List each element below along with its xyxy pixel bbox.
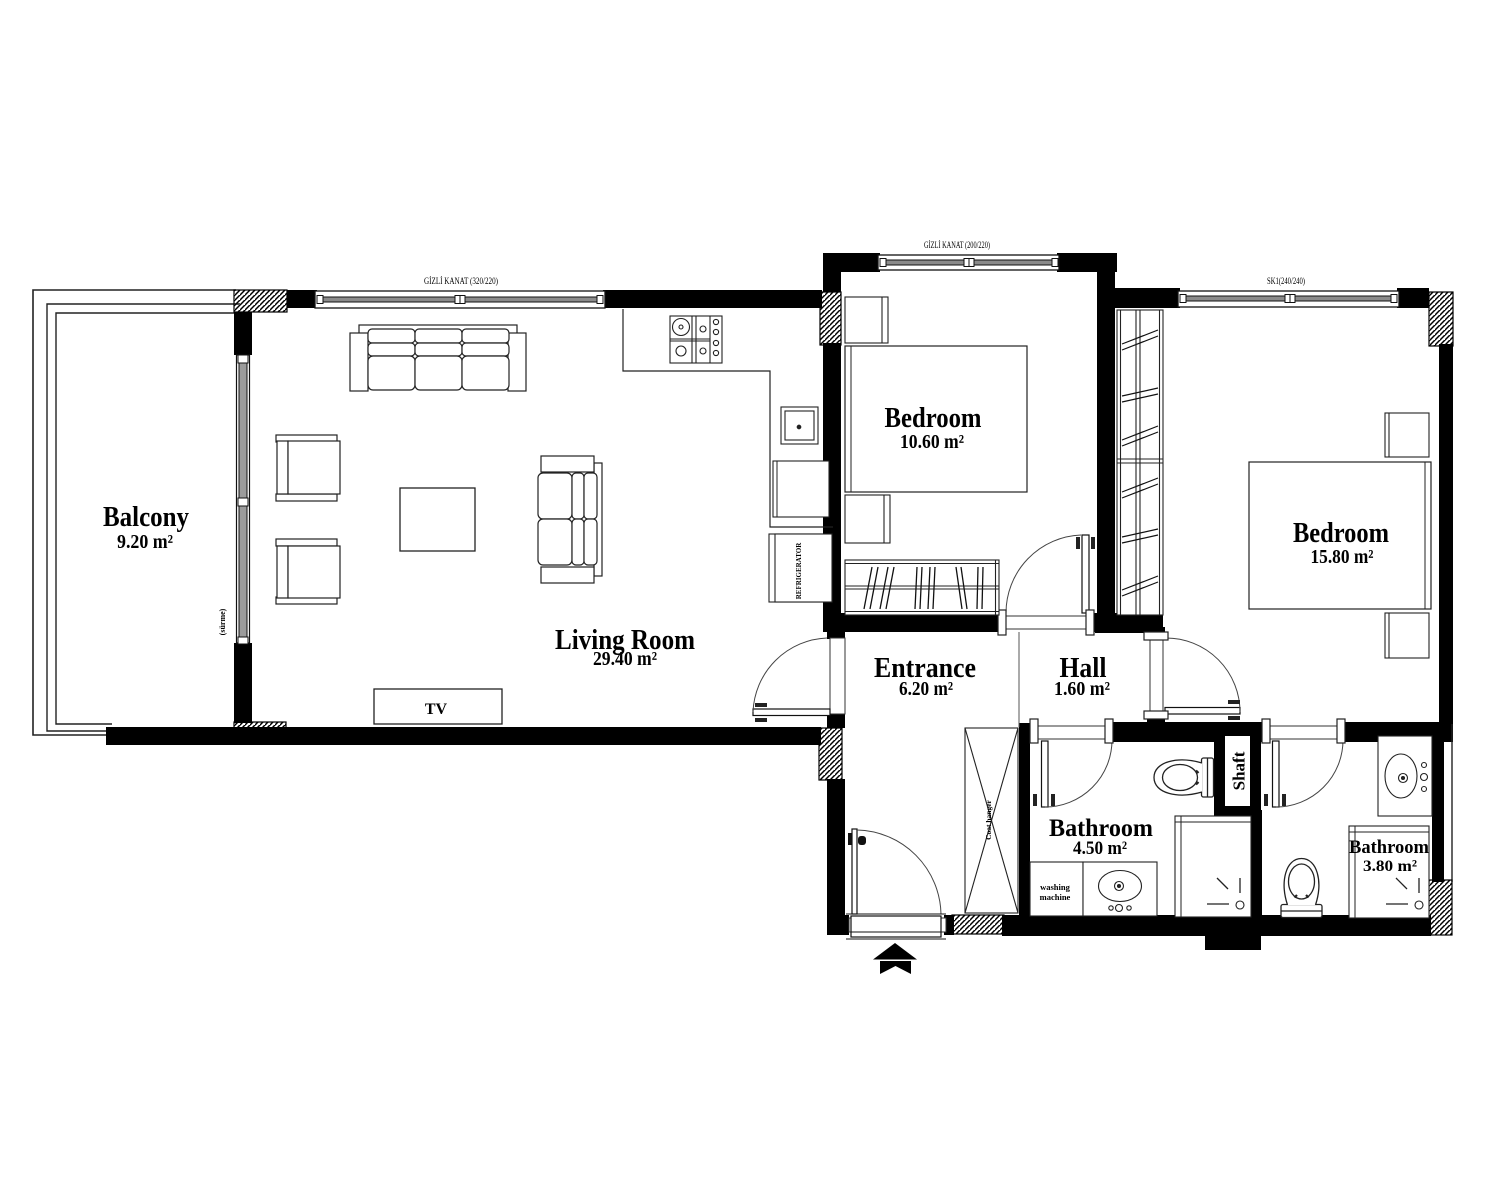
svg-text:29.40 m²: 29.40 m² <box>593 648 657 670</box>
svg-text:4.50 m²: 4.50 m² <box>1073 838 1127 859</box>
svg-text:GİZLİ KANAT (200/220): GİZLİ KANAT (200/220) <box>924 240 990 250</box>
svg-text:10.60 m²: 10.60 m² <box>900 431 964 453</box>
svg-text:TV: TV <box>425 701 448 718</box>
svg-text:1.60 m²: 1.60 m² <box>1054 678 1110 700</box>
svg-text:SK1(240/240): SK1(240/240) <box>1267 276 1305 286</box>
svg-text:15.80 m²: 15.80 m² <box>1311 546 1374 568</box>
svg-text:Bedroom: Bedroom <box>1293 518 1389 549</box>
svg-text:9.20 m²: 9.20 m² <box>117 531 173 553</box>
svg-text:(sürme): (sürme) <box>218 608 227 635</box>
svg-text:Balcony: Balcony <box>103 502 189 533</box>
svg-text:washing: washing <box>1040 882 1071 892</box>
svg-text:GİZLİ KANAT (320/220): GİZLİ KANAT (320/220) <box>424 276 498 286</box>
svg-text:Coat hanger: Coat hanger <box>984 799 993 839</box>
svg-text:Shaft: Shaft <box>1230 751 1249 790</box>
svg-text:6.20 m²: 6.20 m² <box>899 678 953 700</box>
svg-text:3.80 m²: 3.80 m² <box>1363 858 1417 875</box>
svg-text:machine: machine <box>1040 892 1071 902</box>
svg-text:Bathroom: Bathroom <box>1349 837 1429 858</box>
svg-text:Bedroom: Bedroom <box>885 403 982 434</box>
svg-text:REFRIGERATOR: REFRIGERATOR <box>795 542 803 599</box>
